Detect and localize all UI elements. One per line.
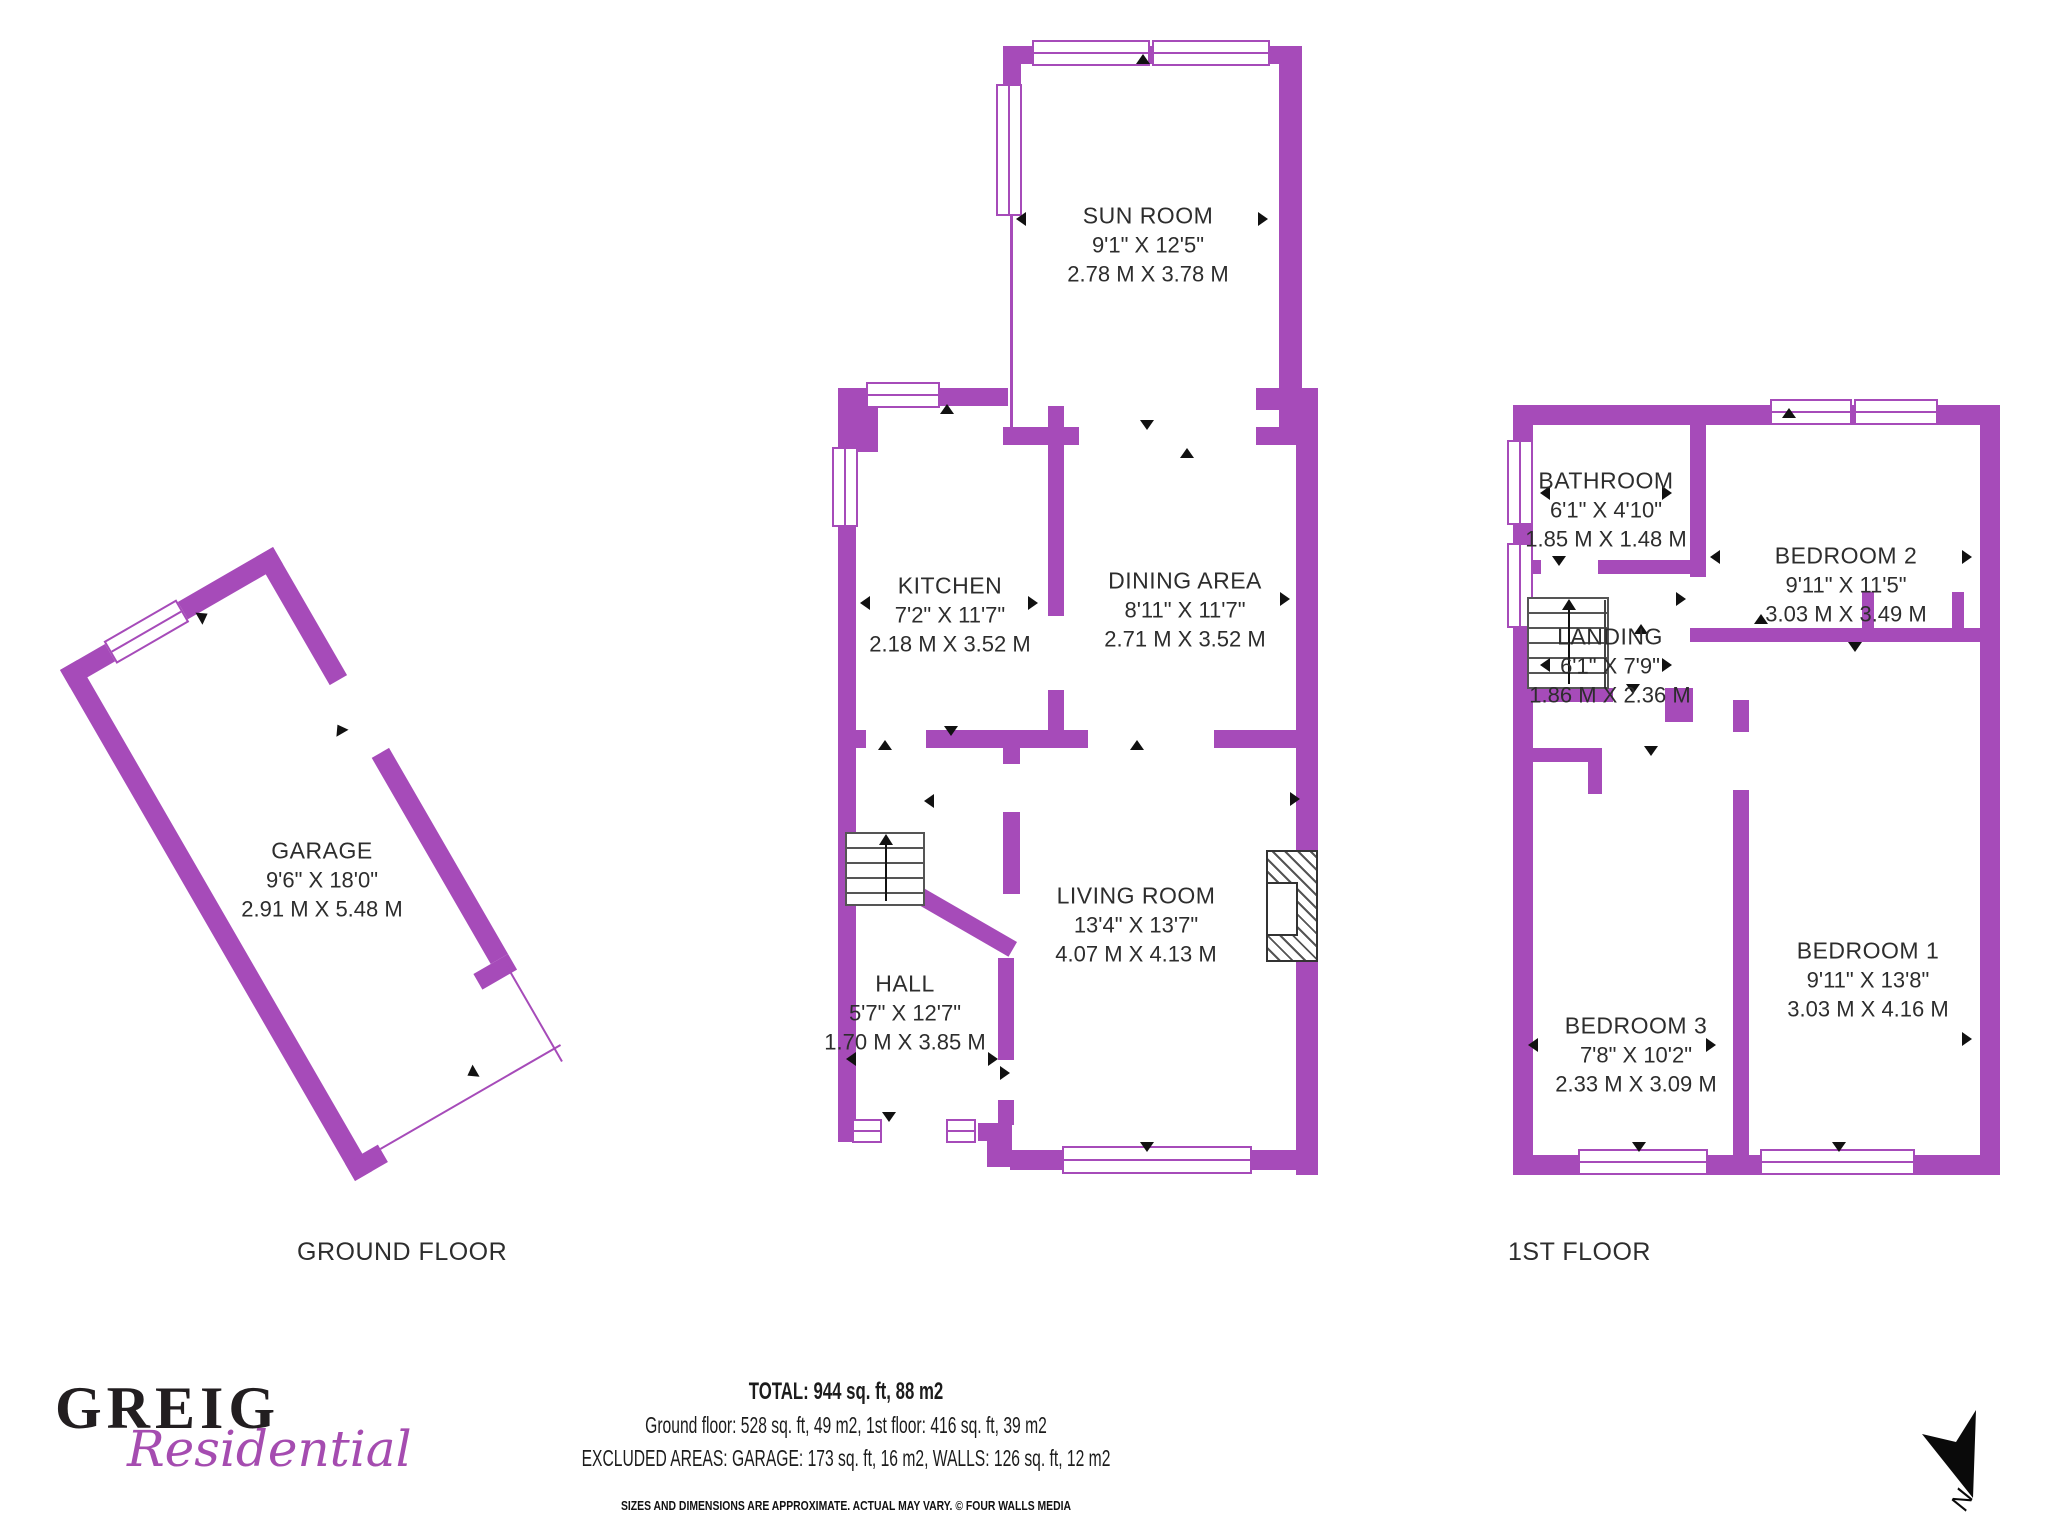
room-dim-imperial: 9'6" X 18'0"	[241, 868, 402, 894]
excluded-areas: EXCLUDED AREAS: GARAGE: 173 sq. ft, 16 m…	[582, 1445, 1111, 1472]
room-label-bedroom3: BEDROOM 3 7'8" X 10'2" 2.33 M X 3.09 M	[1555, 1013, 1716, 1098]
room-name: BEDROOM 2	[1765, 543, 1926, 570]
window	[1760, 1149, 1915, 1175]
door-arrow	[1710, 550, 1720, 564]
staircase	[845, 832, 925, 906]
door-arrow	[882, 1112, 896, 1122]
room-dim-metric: 2.33 M X 3.09 M	[1555, 1072, 1716, 1098]
logo-tagline: Residential	[127, 1424, 415, 1474]
door-arrow	[1782, 408, 1796, 418]
fireplace	[1266, 850, 1318, 962]
wall	[1980, 405, 2000, 1175]
window	[1152, 40, 1270, 66]
wall	[1733, 790, 1749, 1175]
door-arrow	[878, 740, 892, 750]
door-arrow	[464, 1065, 480, 1082]
window	[852, 1119, 882, 1143]
wall	[1003, 46, 1021, 84]
floorplan-canvas: SUN ROOM 9'1" X 12'5" 2.78 M X 3.78 M KI…	[0, 0, 2048, 1536]
stairs-up-arrow	[885, 842, 887, 901]
door-arrow	[1962, 550, 1972, 564]
wall	[1598, 560, 1700, 574]
door-arrow	[1832, 1142, 1846, 1152]
disclaimer: SIZES AND DIMENSIONS ARE APPROXIMATE. AC…	[535, 1498, 1157, 1513]
wall	[1003, 812, 1020, 894]
room-name: DINING AREA	[1104, 568, 1265, 595]
door-arrow	[1136, 54, 1150, 64]
room-label-dining: DINING AREA 8'11" X 11'7" 2.71 M X 3.52 …	[1104, 568, 1265, 653]
door-arrow	[1140, 1142, 1154, 1152]
window	[832, 447, 858, 527]
wall	[1690, 415, 1706, 577]
door-arrow	[1140, 420, 1154, 430]
wall	[256, 547, 347, 685]
wall	[1256, 388, 1318, 410]
wall	[912, 886, 1017, 957]
total-area: TOTAL: 944 sq. ft, 88 m2	[574, 1378, 1118, 1406]
room-name: LANDING	[1529, 624, 1690, 651]
room-dim-imperial: 6'1" X 7'9"	[1529, 654, 1690, 680]
area-summary: TOTAL: 944 sq. ft, 88 m2 Ground floor: 5…	[457, 1378, 1235, 1513]
room-label-landing: LANDING 6'1" X 7'9" 1.86 M X 2.36 M	[1529, 624, 1690, 709]
wall	[1003, 427, 1079, 445]
window	[104, 599, 190, 664]
door-arrow	[331, 721, 348, 737]
window	[866, 382, 940, 408]
room-dim-imperial: 9'11" X 11'5"	[1765, 573, 1926, 599]
door-arrow	[940, 404, 954, 414]
north-label: N	[1944, 1484, 1979, 1515]
room-name: HALL	[824, 971, 985, 998]
door-arrow	[1848, 642, 1862, 652]
room-dim-metric: 3.03 M X 4.16 M	[1787, 997, 1948, 1023]
door-arrow	[1290, 792, 1300, 806]
wall	[1296, 406, 1318, 1175]
window	[1854, 399, 1938, 425]
room-name: LIVING ROOM	[1055, 883, 1216, 910]
wall	[1690, 628, 2000, 642]
door-arrow	[195, 608, 211, 625]
room-dim-metric: 2.18 M X 3.52 M	[869, 632, 1030, 658]
room-dim-metric: 1.86 M X 2.36 M	[1529, 683, 1690, 709]
door-arrow	[1528, 1038, 1538, 1052]
room-name: SUN ROOM	[1067, 203, 1228, 230]
floor-areas: Ground floor: 528 sq. ft, 49 m2, 1st flo…	[582, 1412, 1111, 1439]
door-arrow	[1016, 212, 1026, 226]
room-name: BEDROOM 3	[1555, 1013, 1716, 1040]
wall	[998, 958, 1014, 1060]
room-dim-metric: 4.07 M X 4.13 M	[1055, 942, 1216, 968]
room-name: BEDROOM 1	[1787, 938, 1948, 965]
wall	[1588, 748, 1602, 794]
room-name: BATHROOM	[1525, 468, 1686, 495]
wall	[978, 1123, 1010, 1141]
door-arrow	[1258, 212, 1268, 226]
window	[1032, 40, 1150, 66]
room-dim-metric: 3.03 M X 3.49 M	[1765, 602, 1926, 628]
wall	[1010, 214, 1013, 428]
door-arrow	[1962, 1032, 1972, 1046]
room-label-living: LIVING ROOM 13'4" X 13'7" 4.07 M X 4.13 …	[1055, 883, 1216, 968]
room-dim-imperial: 7'2" X 11'7"	[869, 603, 1030, 629]
ground-floor-title: GROUND FLOOR	[297, 1238, 507, 1267]
room-label-hall: HALL 5'7" X 12'7" 1.70 M X 3.85 M	[824, 971, 985, 1056]
window	[1062, 1146, 1252, 1174]
wall	[1733, 700, 1749, 732]
room-label-sun-room: SUN ROOM 9'1" X 12'5" 2.78 M X 3.78 M	[1067, 203, 1228, 288]
window	[996, 84, 1022, 216]
room-dim-imperial: 9'1" X 12'5"	[1067, 233, 1228, 259]
wall	[1048, 406, 1064, 616]
fireplace-opening	[1266, 882, 1298, 936]
wall	[1279, 46, 1302, 445]
room-dim-imperial: 6'1" X 4'10"	[1525, 498, 1686, 524]
wall	[1003, 748, 1020, 764]
room-label-kitchen: KITCHEN 7'2" X 11'7" 2.18 M X 3.52 M	[869, 573, 1030, 658]
room-name: GARAGE	[241, 838, 402, 865]
room-dim-imperial: 13'4" X 13'7"	[1055, 913, 1216, 939]
door-arrow	[1000, 1066, 1010, 1080]
door-arrow	[1632, 1142, 1646, 1152]
room-dim-imperial: 8'11" X 11'7"	[1104, 598, 1265, 624]
door-arrow	[1130, 740, 1144, 750]
room-dim-imperial: 9'11" X 13'8"	[1787, 968, 1948, 994]
room-dim-imperial: 5'7" X 12'7"	[824, 1001, 985, 1027]
door-arrow	[944, 726, 958, 736]
wall	[1048, 690, 1064, 730]
room-label-bathroom: BATHROOM 6'1" X 4'10" 1.85 M X 1.48 M	[1525, 468, 1686, 553]
door-arrow	[1644, 746, 1658, 756]
wall	[380, 1044, 561, 1150]
wall	[506, 966, 563, 1062]
door-arrow	[1676, 592, 1686, 606]
room-dim-metric: 1.70 M X 3.85 M	[824, 1030, 985, 1056]
room-dim-imperial: 7'8" X 10'2"	[1555, 1043, 1716, 1069]
door-arrow	[924, 794, 934, 808]
room-label-bedroom1: BEDROOM 1 9'11" X 13'8" 3.03 M X 4.16 M	[1787, 938, 1948, 1023]
door-arrow	[1280, 592, 1290, 606]
door-arrow	[1180, 448, 1194, 458]
wall	[998, 1100, 1014, 1125]
wall	[1952, 592, 1964, 630]
window	[1578, 1149, 1708, 1175]
room-label-bedroom2: BEDROOM 2 9'11" X 11'5" 3.03 M X 3.49 M	[1765, 543, 1926, 628]
door-arrow	[1552, 556, 1566, 566]
room-dim-metric: 1.85 M X 1.48 M	[1525, 527, 1686, 553]
window	[946, 1119, 976, 1143]
room-dim-metric: 2.78 M X 3.78 M	[1067, 262, 1228, 288]
door-arrow	[988, 1052, 998, 1066]
agency-logo: GREIG Residential	[55, 1378, 415, 1474]
room-label-garage: GARAGE 9'6" X 18'0" 2.91 M X 5.48 M	[241, 838, 402, 923]
room-dim-metric: 2.91 M X 5.48 M	[241, 897, 402, 923]
room-dim-metric: 2.71 M X 3.52 M	[1104, 627, 1265, 653]
room-name: KITCHEN	[869, 573, 1030, 600]
first-floor-title: 1ST FLOOR	[1508, 1238, 1651, 1267]
north-arrow-icon: N	[1918, 1408, 1998, 1518]
north-arrow: N	[1918, 1408, 1998, 1518]
wall	[838, 730, 866, 748]
